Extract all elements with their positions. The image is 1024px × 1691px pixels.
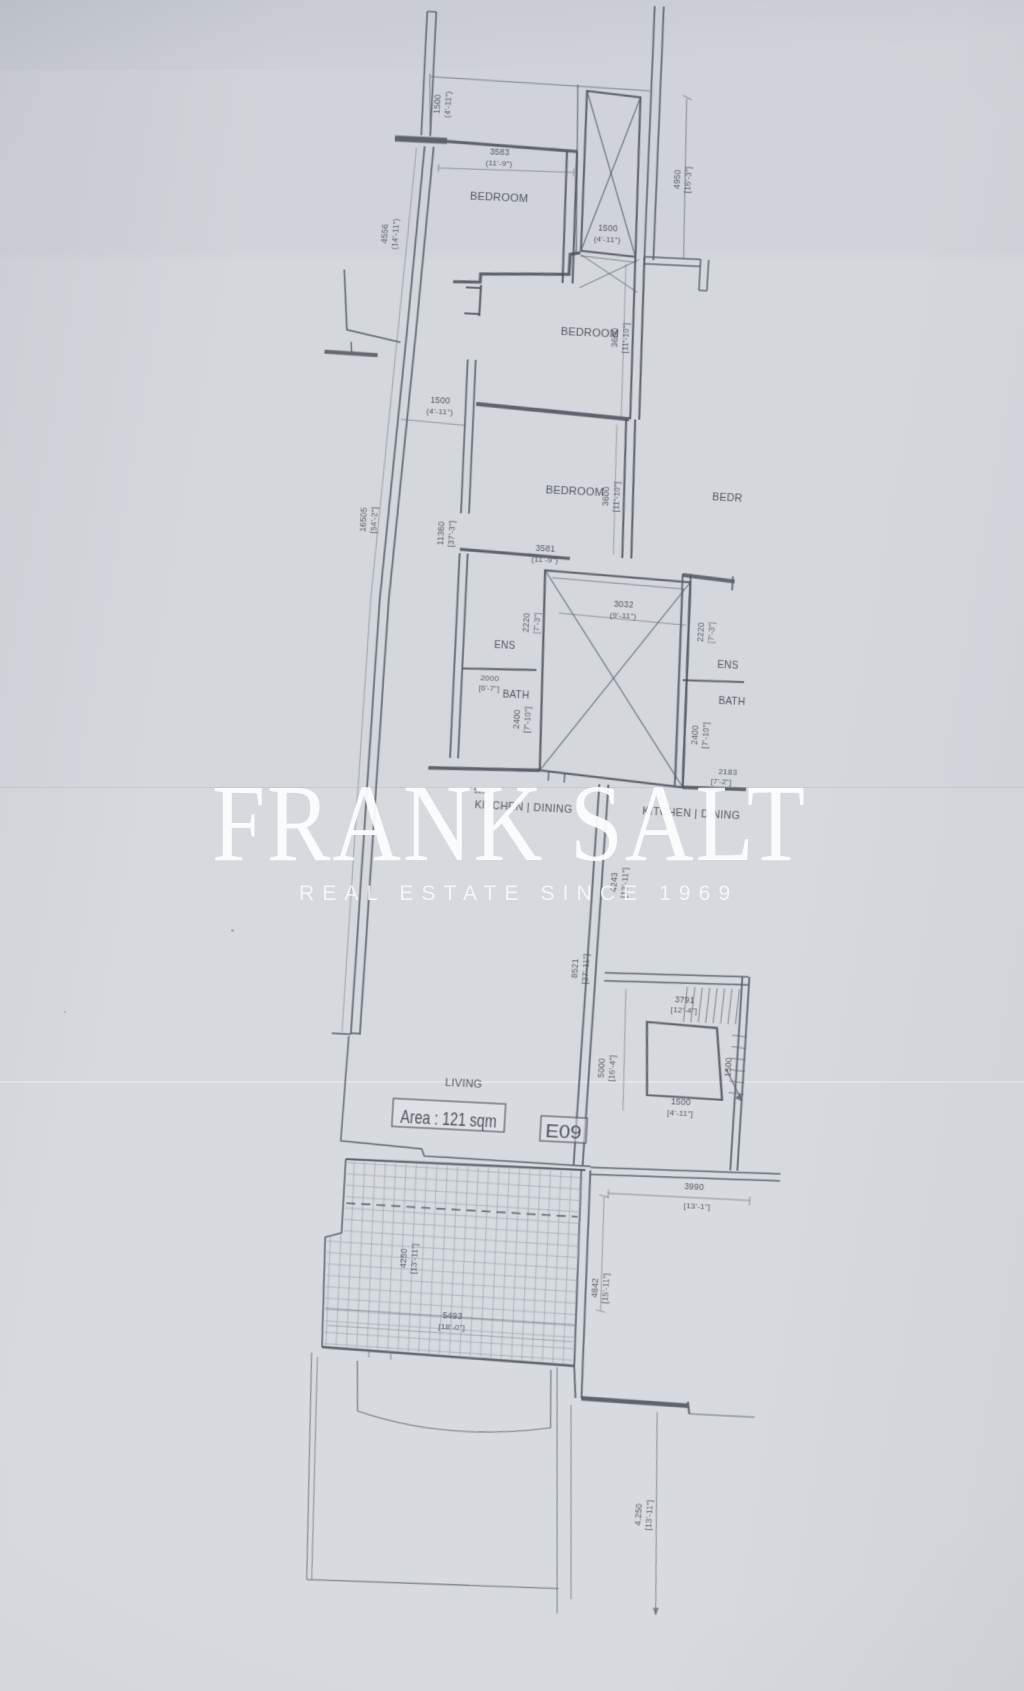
svg-text:1500: 1500 <box>598 223 618 234</box>
svg-text:BEDR: BEDR <box>712 492 743 504</box>
svg-text:1500: 1500 <box>432 94 443 114</box>
svg-text:2220: 2220 <box>695 622 706 642</box>
svg-text:[7'-2"]: [7'-2"] <box>711 777 732 787</box>
svg-text:[4'-11"]: [4'-11"] <box>667 1108 693 1118</box>
svg-text:(9'-11"): (9'-11") <box>609 611 636 621</box>
svg-text:(11'-9"): (11'-9") <box>531 555 558 565</box>
svg-text:[7'-3"]: [7'-3"] <box>706 621 716 643</box>
svg-text:[12'-4"]: [12'-4"] <box>671 1005 698 1015</box>
svg-text:4842: 4842 <box>589 1278 600 1298</box>
svg-text:(4'-11"): (4'-11") <box>594 234 621 244</box>
svg-text:KITCHEN | DINING: KITCHEN | DINING <box>642 806 741 822</box>
svg-text:2400: 2400 <box>511 709 522 729</box>
svg-text:[27'-11"]: [27'-11"] <box>580 953 591 984</box>
svg-text:ENS: ENS <box>717 660 739 672</box>
svg-text:2220: 2220 <box>521 612 532 632</box>
svg-text:[16'-4"]: [16'-4"] <box>607 1055 618 1082</box>
svg-text:[11'-10"]: [11'-10"] <box>611 481 622 512</box>
svg-text:3600: 3600 <box>609 327 620 347</box>
svg-text:[7'-10"]: [7'-10"] <box>522 706 533 733</box>
svg-text:3581: 3581 <box>535 543 555 554</box>
svg-text:2000: 2000 <box>480 673 499 683</box>
svg-text:2400: 2400 <box>689 725 700 745</box>
svg-text:[54'-2"]: [54'-2"] <box>369 507 380 534</box>
svg-text:(4'-11"): (4'-11") <box>426 407 453 417</box>
svg-text:(14'-11"): (14'-11") <box>390 218 401 250</box>
svg-text:11360: 11360 <box>435 521 446 546</box>
svg-text:4243: 4243 <box>608 872 619 892</box>
svg-text:[37'-3"]: [37'-3"] <box>446 520 457 547</box>
svg-text:8521: 8521 <box>569 958 580 978</box>
svg-text:5493: 5493 <box>442 1310 462 1321</box>
svg-text:4.250: 4.250 <box>633 1503 644 1526</box>
svg-text:4556: 4556 <box>379 223 390 243</box>
svg-text:(11'-9"): (11'-9") <box>485 158 512 168</box>
svg-text:[13'-11"]: [13'-11"] <box>409 1243 420 1274</box>
svg-text:5263: 5263 <box>474 788 491 796</box>
svg-text:E09: E09 <box>545 1120 582 1143</box>
svg-text:3583: 3583 <box>489 146 509 157</box>
svg-text:BATH: BATH <box>502 689 529 701</box>
svg-text:ENS: ENS <box>494 640 516 652</box>
svg-text:KITCHEN | DINING: KITCHEN | DINING <box>474 800 573 816</box>
svg-text:[7'-3"]: [7'-3"] <box>532 612 542 634</box>
svg-text:[13'-1"]: [13'-1"] <box>684 1201 711 1211</box>
svg-text:1500: 1500 <box>430 395 450 406</box>
svg-text:16505: 16505 <box>357 507 368 532</box>
svg-text:[13'-11"]: [13'-11"] <box>620 867 631 898</box>
svg-text:3791: 3791 <box>674 994 694 1005</box>
svg-text:[15'-11"]: [15'-11"] <box>600 1273 611 1304</box>
svg-text:BEDROOM: BEDROOM <box>470 191 529 206</box>
svg-text:[7'-10"]: [7'-10"] <box>700 722 711 749</box>
svg-text:5000: 5000 <box>596 1058 607 1078</box>
svg-text:1500: 1500 <box>723 1057 734 1077</box>
svg-text:[13'-11"]: [13'-11"] <box>644 1500 655 1531</box>
svg-text:[6'-7"]: [6'-7"] <box>479 683 500 693</box>
svg-text:(4'-11"): (4'-11") <box>443 91 454 118</box>
svg-text:4250: 4250 <box>398 1248 409 1268</box>
svg-text:BEDROOM: BEDROOM <box>545 484 604 499</box>
svg-text:LIVING: LIVING <box>445 1077 483 1091</box>
svg-text:2183: 2183 <box>718 767 738 777</box>
svg-text:[16'-3"]: [16'-3"] <box>683 166 694 193</box>
svg-text:3600: 3600 <box>600 486 611 506</box>
svg-text:[11'-10"]: [11'-10"] <box>620 323 631 354</box>
svg-text:BATH: BATH <box>718 696 745 708</box>
svg-text:4950: 4950 <box>671 169 682 189</box>
svg-text:3990: 3990 <box>684 1181 704 1192</box>
svg-text:3032: 3032 <box>614 599 634 610</box>
svg-text:1500: 1500 <box>671 1096 691 1107</box>
svg-text:[18'-0"]: [18'-0"] <box>438 1322 465 1332</box>
